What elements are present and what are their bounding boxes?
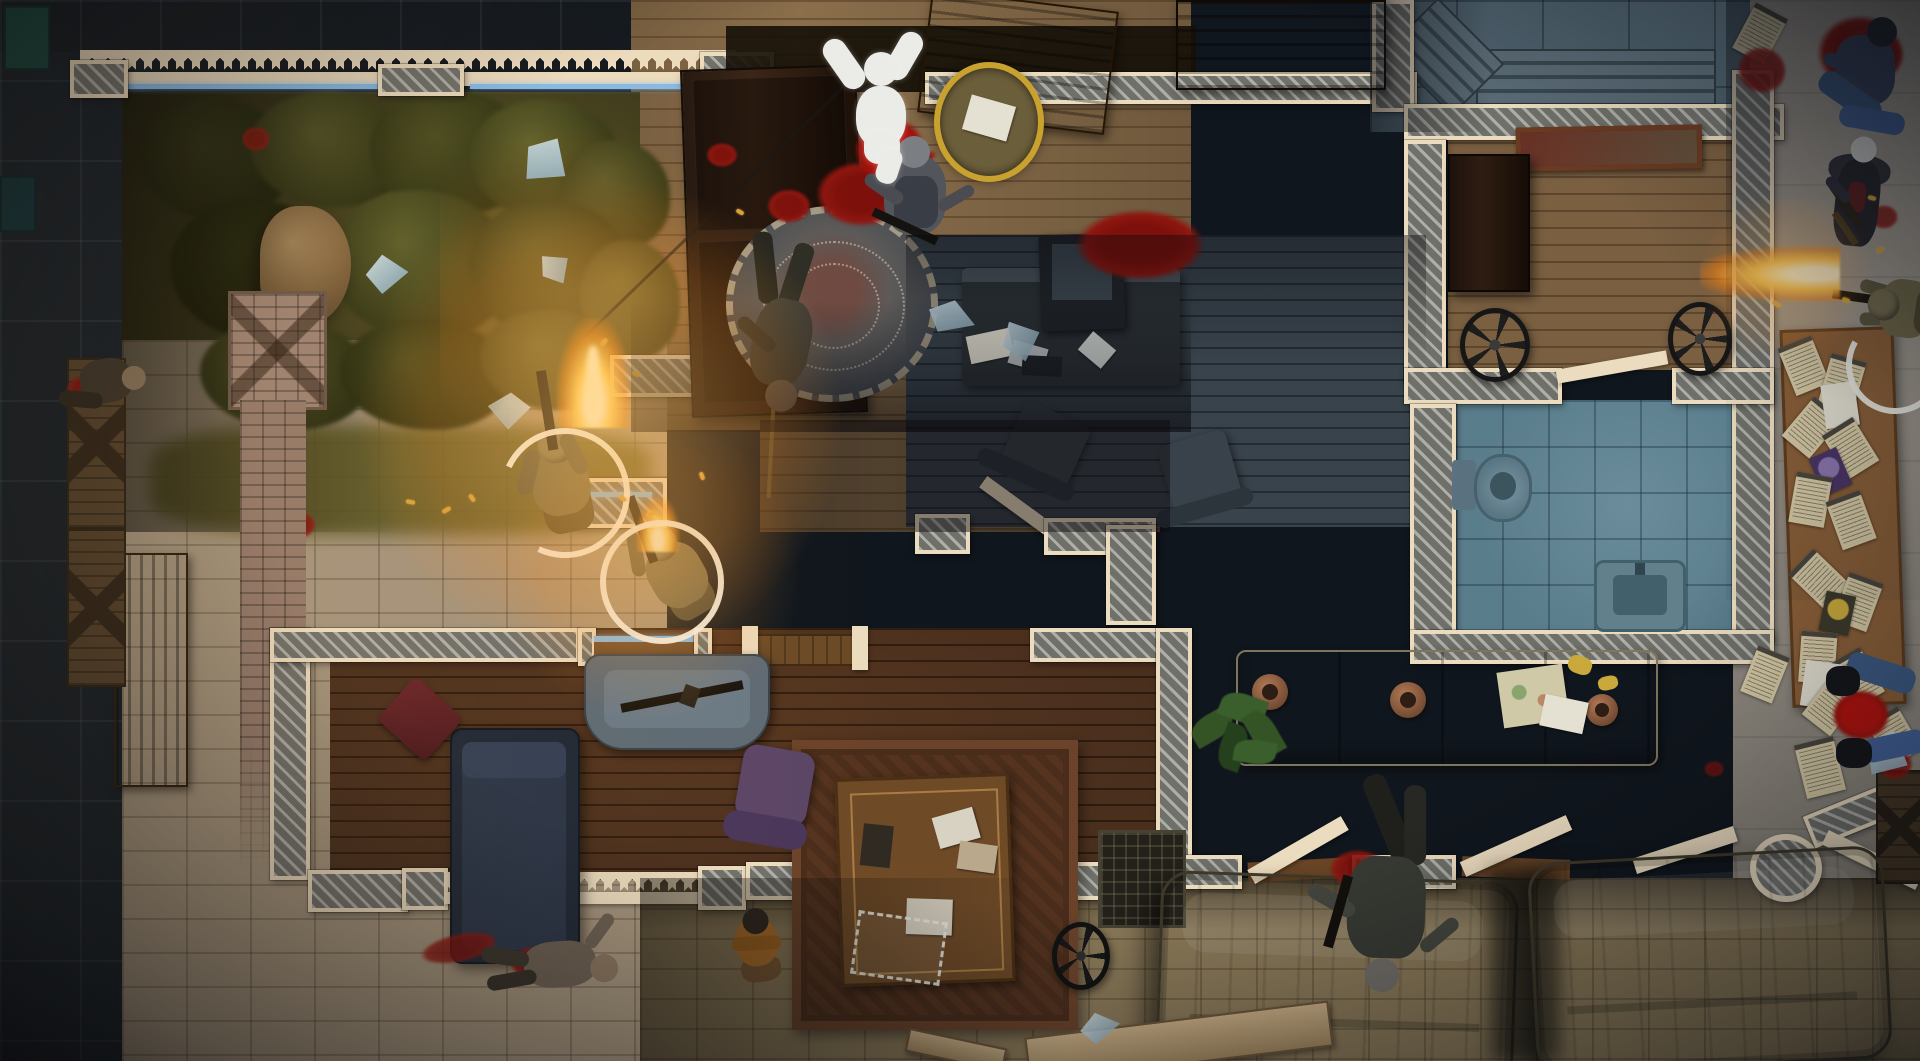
body-torso xyxy=(1346,855,1428,960)
pot-hole xyxy=(1595,703,1609,717)
flower-pot xyxy=(1390,682,1426,718)
warm-tint-left xyxy=(0,0,900,1061)
yellow-item xyxy=(1566,652,1595,677)
boot xyxy=(1836,738,1872,768)
army-truck xyxy=(1527,845,1894,1061)
flower-pot xyxy=(1586,694,1618,726)
boot xyxy=(1826,666,1860,696)
dead-body-study xyxy=(1302,769,1462,1004)
plant xyxy=(1190,694,1286,770)
office-shadow xyxy=(906,235,1426,365)
sink-basin xyxy=(1613,575,1667,615)
painting-on-floor xyxy=(1516,124,1703,171)
truck-rib xyxy=(1567,991,1857,1014)
office-south-wall-corner xyxy=(1106,525,1156,625)
photo xyxy=(956,841,998,874)
body-leg xyxy=(1404,785,1426,865)
truck-hood-band xyxy=(1553,865,1856,939)
yellow-item xyxy=(1597,674,1619,692)
toilet xyxy=(1452,452,1530,520)
sink-faucet xyxy=(1635,563,1645,575)
body-head xyxy=(1364,957,1399,992)
office-east-wall xyxy=(1410,404,1456,636)
beige-couch xyxy=(1236,650,1658,766)
sink xyxy=(1594,560,1686,632)
loose-paper xyxy=(1539,694,1589,734)
warm-glow-right xyxy=(1690,200,1880,350)
pew-bench xyxy=(1176,0,1386,90)
toilet-bowl-inner xyxy=(1490,472,1516,500)
sideboard xyxy=(1448,154,1530,292)
blood-drip xyxy=(1700,758,1728,780)
patio-steps xyxy=(1476,49,1716,108)
patio-shade xyxy=(1370,0,1490,132)
game-viewport xyxy=(0,0,1920,1061)
toilet-tank xyxy=(1452,460,1476,510)
pot-hole xyxy=(1400,692,1416,708)
dead-body-legs xyxy=(1806,660,1920,790)
ceiling-fan xyxy=(1460,308,1530,382)
study-ne-wall xyxy=(1030,628,1162,662)
